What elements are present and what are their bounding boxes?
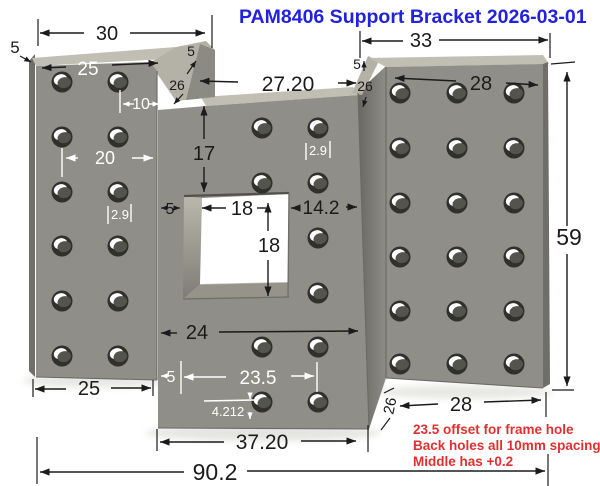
dim-text: 2.9 [309, 143, 327, 158]
hole [308, 228, 329, 249]
dim-text: 18 [231, 198, 253, 220]
dim-text: 2.9 [111, 207, 129, 222]
dim-text: 4.212 [212, 404, 245, 419]
dim-text: 5 [10, 38, 19, 57]
dim-text: 18 [258, 235, 280, 257]
dim-text: 25 [77, 59, 98, 80]
hole [390, 83, 411, 104]
dim-text: 26 [169, 77, 185, 93]
hole [52, 236, 73, 257]
dim-thickness-top-left: 5 [10, 38, 31, 62]
hole [308, 392, 329, 413]
hole [447, 193, 468, 214]
dim-left-offset-29: 2.9 [108, 204, 131, 224]
dim-text: 20 [95, 148, 115, 168]
bracket-drawing: 5 30 25 5 26 10 [0, 0, 600, 486]
dim-text: 5 [167, 369, 176, 386]
dim-text: 27.20 [262, 73, 315, 96]
hole [308, 173, 329, 194]
hole [504, 247, 525, 268]
hole [504, 301, 525, 322]
dim-text: 5 [166, 201, 175, 218]
hole [252, 173, 273, 194]
hole [252, 118, 273, 139]
hole [390, 354, 411, 375]
hole [108, 182, 129, 203]
hole [390, 247, 411, 268]
hole [252, 392, 273, 413]
dim-text: 5 [353, 56, 361, 72]
hole [52, 127, 73, 148]
dim-text: 10 [132, 96, 150, 113]
hole [308, 283, 329, 304]
dim-text: 37.20 [236, 431, 289, 454]
hole [52, 72, 73, 93]
dim-center-offset-29: 2.9 [306, 141, 330, 160]
hole [447, 138, 468, 159]
dim-text: 26 [357, 78, 373, 94]
window-left-wall [183, 196, 202, 299]
dim-overall-height-59: 59 [551, 62, 582, 390]
drawing-title: PAM8406 Support Bracket 2026-03-01 [239, 6, 587, 28]
hole [108, 291, 129, 312]
bracket-body [29, 41, 550, 429]
hole [390, 301, 411, 322]
dim-text: 25 [78, 378, 100, 400]
note-line-2: Back holes all 10mm spacing [413, 438, 600, 453]
dim-right-top-width-33: 33 [360, 30, 550, 58]
dim-text: 33 [410, 30, 432, 52]
drawing-notes: 23.5 offset for frame hole Back holes al… [413, 422, 600, 469]
hole [504, 138, 525, 159]
dim-text: 14.2 [303, 198, 340, 219]
hole [252, 337, 273, 358]
hole [447, 247, 468, 268]
hole [308, 118, 329, 139]
dim-text: 28 [450, 394, 472, 416]
dim-text: 90.2 [193, 459, 238, 485]
hole [52, 182, 73, 203]
dim-top-left-width: 30 [38, 15, 212, 48]
dim-text: 24 [186, 322, 208, 344]
dim-text: 26 [380, 396, 400, 416]
hole [447, 354, 468, 375]
right-wing-face [386, 64, 543, 388]
dim-text: 59 [556, 224, 582, 250]
dim-text: 30 [96, 23, 118, 45]
hole [108, 346, 129, 367]
hole [308, 337, 329, 358]
hole [504, 83, 525, 104]
hole [504, 193, 525, 214]
left-wing-side [29, 54, 35, 377]
hole [52, 346, 73, 367]
dim-text: 17 [193, 143, 215, 165]
hole [52, 291, 73, 312]
right-wing-side [543, 62, 550, 388]
hole [390, 138, 411, 159]
cad-drawing-canvas: 5 30 25 5 26 10 [0, 0, 600, 486]
dim-text: 28 [470, 73, 492, 95]
hole [390, 193, 411, 214]
hole [447, 83, 468, 104]
dim-text: 5 [187, 43, 195, 59]
note-line-1: 23.5 offset for frame hole [413, 422, 574, 437]
hole [108, 127, 129, 148]
dim-text: 23.5 [240, 368, 277, 389]
note-line-3: Middle has +0.2 [413, 454, 513, 469]
hole [108, 72, 129, 93]
hole [447, 301, 468, 322]
hole [504, 354, 525, 375]
hole [108, 236, 129, 257]
